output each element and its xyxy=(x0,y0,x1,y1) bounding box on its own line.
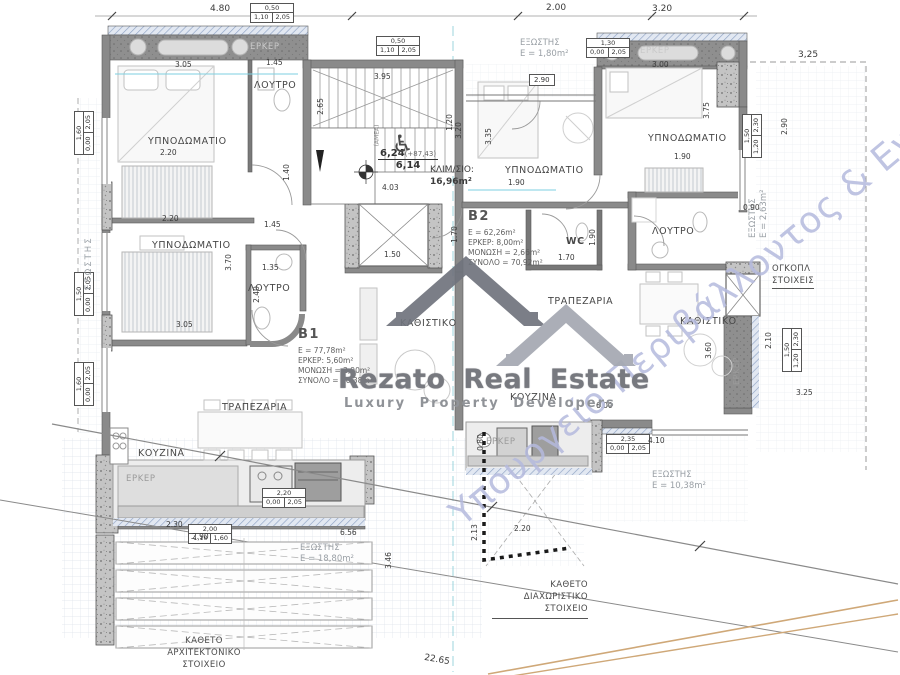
room-label-bath: ΛΟΥΤΡΟ xyxy=(254,80,296,91)
window-schedule-box: 0,50 1,102,05 xyxy=(376,36,420,56)
dim-label: 3.25 xyxy=(796,388,813,397)
dim-label: 1.20 xyxy=(445,114,454,131)
balcony-label-bottom-right: ΕΞΩΣΤΗΣΕ = 10,38m² xyxy=(652,470,706,492)
brand-watermark: Rezato Real Estate xyxy=(338,364,638,395)
dim-label: 3.70 xyxy=(224,254,233,271)
dim-label: 3.20 xyxy=(454,122,463,139)
dim-label: 2.90 xyxy=(780,118,789,135)
window-schedule-box: 0,50 1,102,05 xyxy=(250,3,294,23)
dim-label: 2.20 xyxy=(160,148,177,157)
window-schedule-box: 1,60 0,002,05 xyxy=(74,362,94,406)
dim-label-boxed: 2.90 xyxy=(529,74,555,86)
dim-label: 0.80 xyxy=(476,434,485,451)
dim-label: 1.90 xyxy=(674,152,691,161)
dim-label: 1.90 xyxy=(588,229,597,246)
dim-label: 1.45 xyxy=(264,220,281,229)
dim-label: 1.40 xyxy=(282,164,291,181)
dim-label: 3.20 xyxy=(652,4,672,14)
room-label-bedroom: ΥΠΝΟΔΩΜΑΤΙΟ xyxy=(152,240,231,251)
company-logo xyxy=(378,246,640,368)
wheelchair-icon: ♿ xyxy=(392,130,414,158)
window-schedule-box: 1,60 0,002,05 xyxy=(74,111,94,155)
room-label-erker: ΕΡΚΕΡ xyxy=(126,474,156,484)
balcony-label-top: ΕΞΩΣΤΗΣΕ = 1,80m² xyxy=(520,38,569,60)
room-label-bedroom: ΥΠΝΟΔΩΜΑΤΙΟ xyxy=(648,133,727,144)
dim-label: 3.00 xyxy=(652,60,669,69)
dim-label: 1.35 xyxy=(262,263,279,272)
window-schedule-box: 2,20 0,002,05 xyxy=(262,488,306,508)
architectural-element-note: ΚΑΘΕΤΟ ΑΡΧΙΤΕΚΤΟΝΙΚΟ ΣΤΟΙΧΕΙΟ xyxy=(152,636,256,672)
room-label-bath: ΛΟΥΤΡΟ xyxy=(652,226,694,237)
dim-label: 3.05 xyxy=(176,320,193,329)
dim-label: 1.45 xyxy=(266,58,283,67)
room-label-bedroom: ΥΠΝΟΔΩΜΑΤΙΟ xyxy=(148,136,227,147)
divider-element-note: ΚΑΘΕΤΟ ΔΙΑΧΩΡΙΣΤΙΚΟ ΣΤΟΙΧΕΙΟ xyxy=(492,580,588,619)
dim-label: 3.75 xyxy=(702,102,711,119)
dim-label: 2.00 xyxy=(546,3,566,13)
dim-label: 2.20 xyxy=(514,524,531,533)
dim-label: 3.46 xyxy=(384,552,393,569)
dim-label: 2.20 xyxy=(162,214,179,223)
dim-label: 2.90 xyxy=(192,532,209,541)
brand-tagline: Luxury Property Developers xyxy=(344,396,616,411)
window-schedule-box: 2,35 0,002,05 xyxy=(606,434,650,454)
floorplan-page: 4.80 2.00 3.20 3,25 0,50 1,102,05 0,50 1… xyxy=(0,0,900,675)
room-label-erker: ΕΡΚΕΡ xyxy=(250,42,280,52)
balcony-label-bottom-left: ΕΞΩΣΤΗΣΕ = 18,80m² xyxy=(300,543,354,565)
window-schedule-box: 1,50 1,202,30 xyxy=(782,328,802,372)
dim-label: 0.90 xyxy=(743,203,760,212)
dim-label: 3.35 xyxy=(484,128,493,145)
room-label-erker: ΕΡΚΕΡ xyxy=(640,46,670,56)
dim-label: 2.40 xyxy=(252,286,261,303)
amea-label: (ΑΜΕΑ) xyxy=(373,125,380,147)
dim-label: 4.80 xyxy=(210,4,230,14)
dim-label: 1.90 xyxy=(508,178,525,187)
dim-label: 4.03 xyxy=(382,183,399,192)
window-schedule-box: 1,30 0,002,05 xyxy=(586,38,630,58)
dim-label: 1.70 xyxy=(450,226,459,243)
balcony-label-left: ΕΞΩΣΤΗΣ xyxy=(84,236,95,290)
dim-label: 3.05 xyxy=(175,60,192,69)
room-label-dining: ΤΡΑΠΕΖΑΡΙΑ xyxy=(222,402,287,413)
room-label-kitchen: ΚΟΥΖΙΝΑ xyxy=(138,448,185,459)
dim-label: 6.56 xyxy=(340,528,357,537)
dim-label: 4.10 xyxy=(648,436,665,445)
dim-label: 3,25 xyxy=(798,50,818,60)
dim-label: 2.10 xyxy=(764,332,773,349)
room-label-erker: ΕΡΚΕΡ xyxy=(732,357,741,385)
dim-label: 3.95 xyxy=(374,72,391,81)
window-schedule-box: 1,50 1,202,30 xyxy=(742,114,762,158)
stair-label: ΚΛΙΜ/ΣΙΟ: 16,96m² xyxy=(430,164,474,188)
logo-roofs-icon xyxy=(378,246,640,368)
room-label-bedroom: ΥΠΝΟΔΩΜΑΤΙΟ xyxy=(505,165,584,176)
dim-label: 2.30 xyxy=(166,520,183,529)
dim-label: 2.65 xyxy=(316,98,325,115)
dim-label: 3.60 xyxy=(704,342,713,359)
